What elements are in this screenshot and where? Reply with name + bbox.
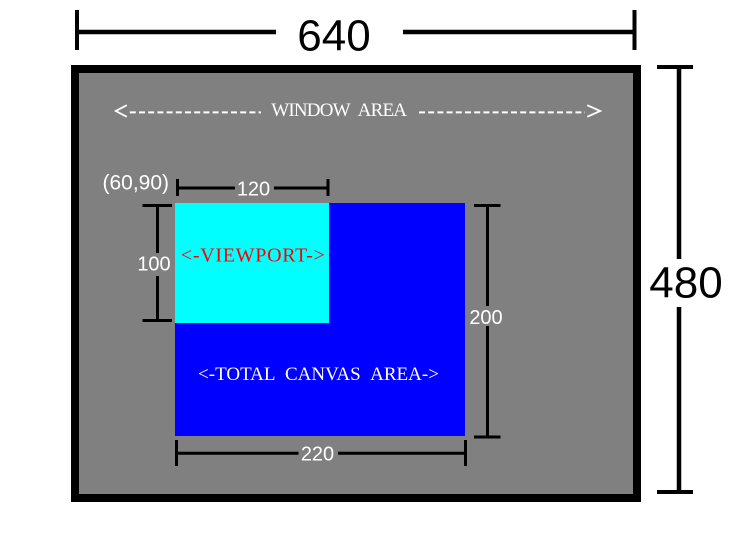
svg-text:WINDOW AREA: WINDOW AREA [271, 100, 407, 121]
svg-text:<-VIEWPORT->: <-VIEWPORT-> [181, 245, 326, 267]
svg-text:100: 100 [137, 254, 170, 276]
svg-text:120: 120 [237, 179, 270, 201]
svg-text:220: 220 [301, 444, 334, 466]
svg-text:200: 200 [469, 307, 502, 329]
svg-text:(60,90): (60,90) [103, 172, 170, 195]
svg-text:640: 640 [297, 12, 370, 61]
svg-text:480: 480 [649, 259, 722, 308]
svg-text:<-TOTAL CANVAS AREA->: <-TOTAL CANVAS AREA-> [198, 364, 439, 385]
